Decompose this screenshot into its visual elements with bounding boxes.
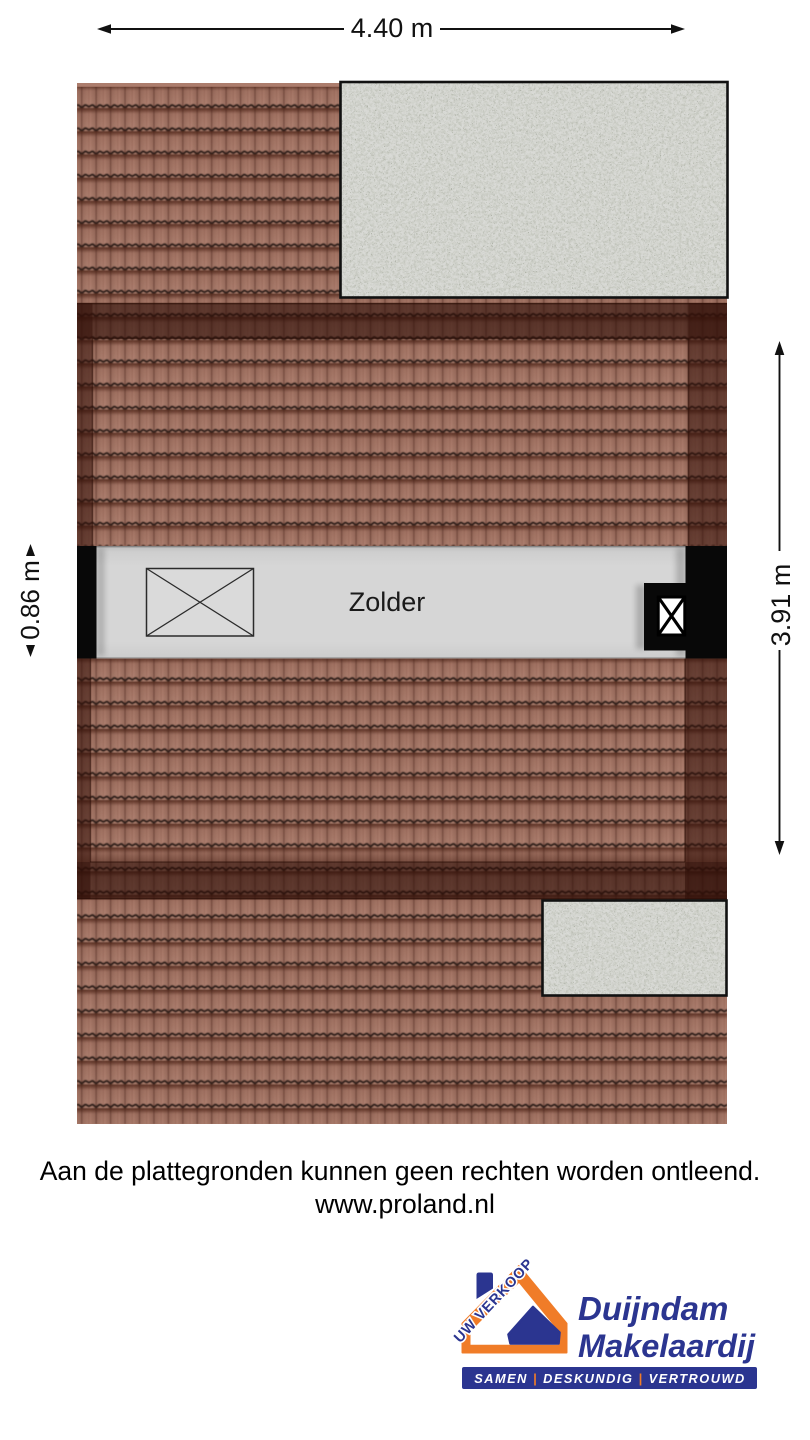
svg-text:0.86 m: 0.86 m <box>15 560 45 640</box>
svg-text:Zolder: Zolder <box>349 587 426 617</box>
svg-text:www.proland.nl: www.proland.nl <box>314 1189 495 1219</box>
svg-text:3.91 m: 3.91 m <box>766 564 796 647</box>
svg-text:Makelaardij: Makelaardij <box>578 1328 756 1364</box>
svg-text:4.40 m: 4.40 m <box>351 13 434 43</box>
svg-text:Aan de plattegronden kunnen ge: Aan de plattegronden kunnen geen rechten… <box>40 1156 760 1186</box>
svg-text:SAMEN | DESKUNDIG | VERTROUWD: SAMEN | DESKUNDIG | VERTROUWD <box>474 1371 746 1386</box>
svg-text:Duijndam: Duijndam <box>578 1290 728 1327</box>
